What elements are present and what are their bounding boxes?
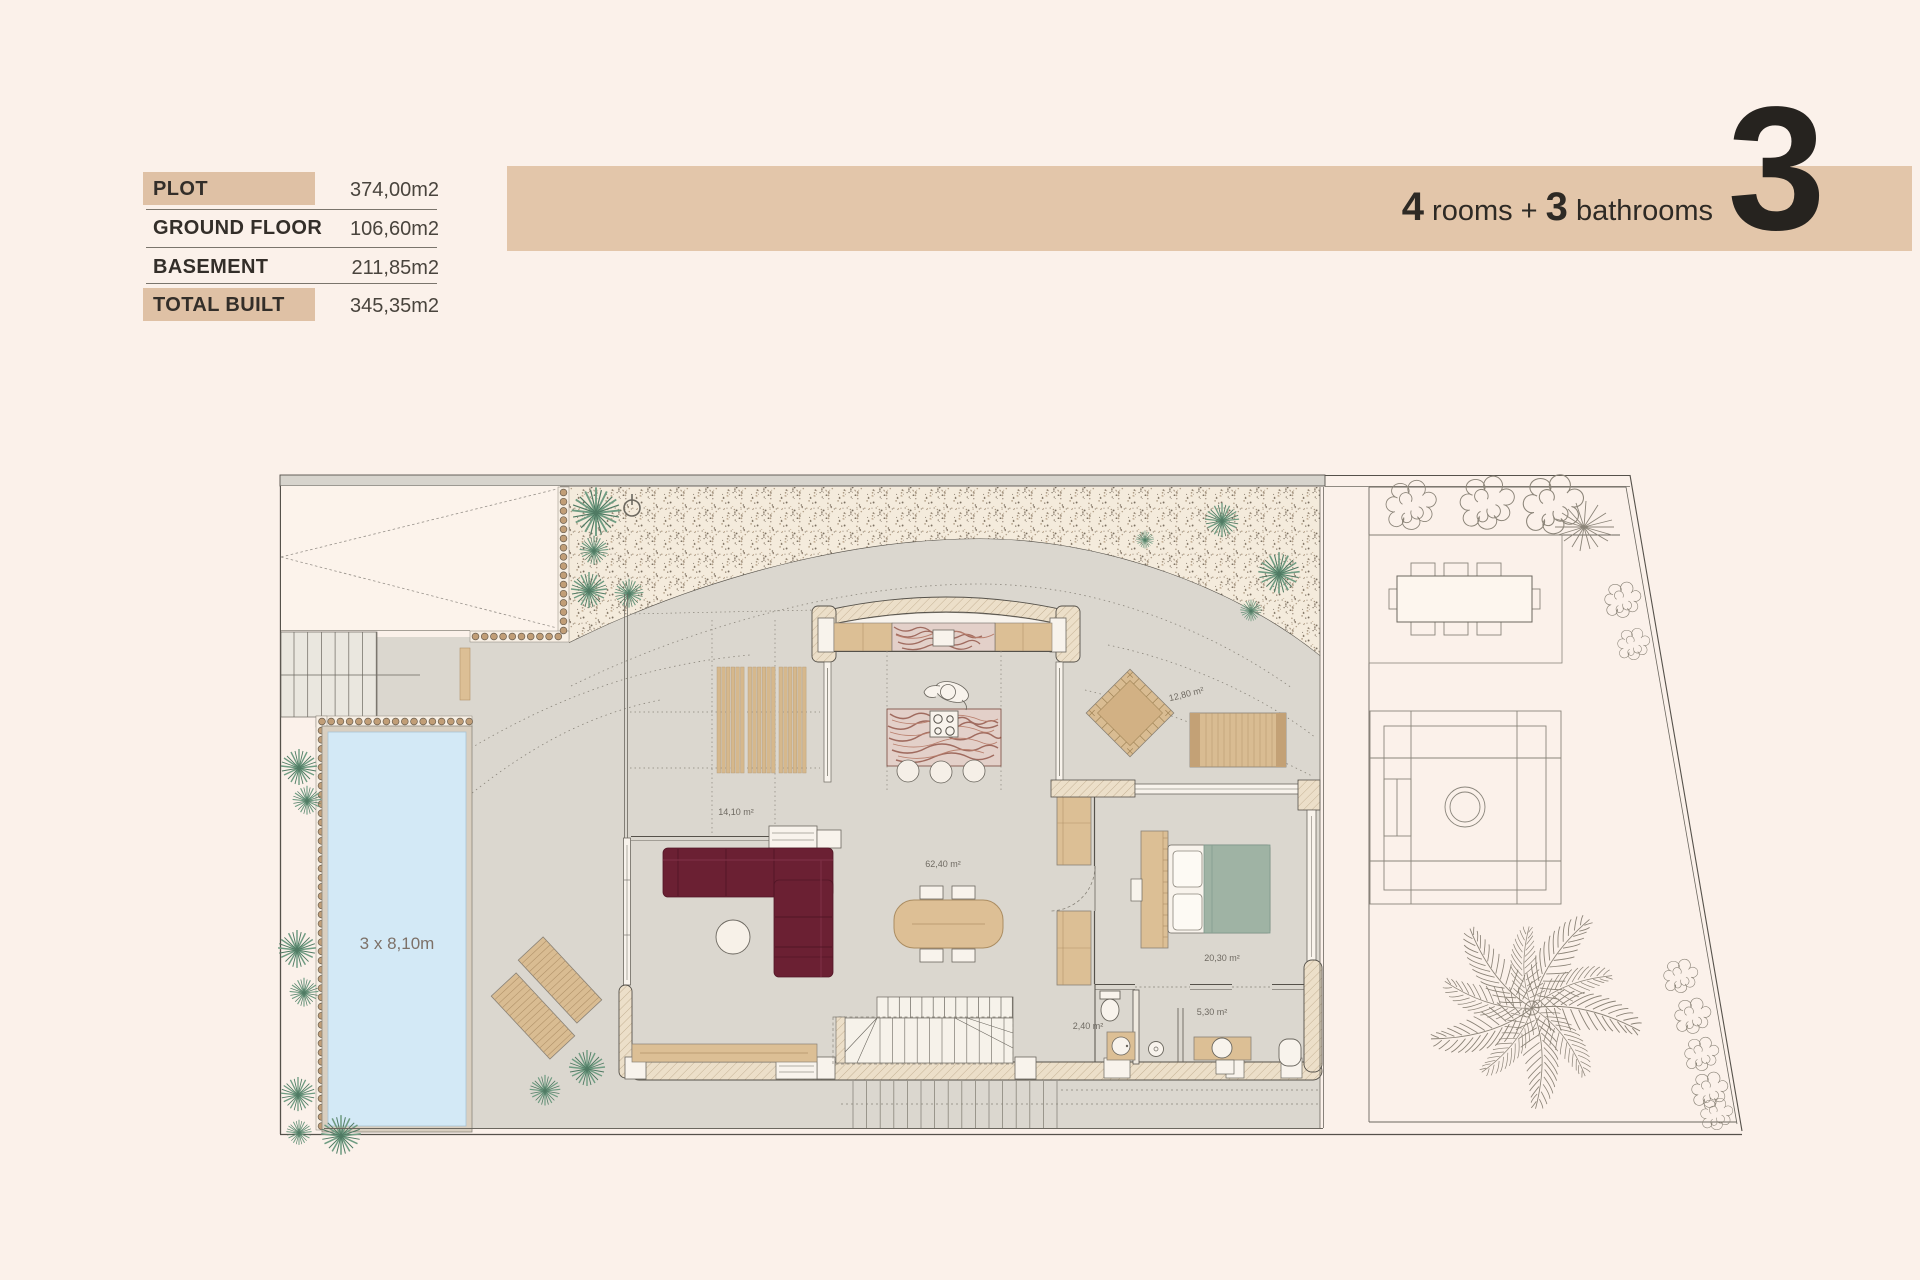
svg-text:3 x 8,10m: 3 x 8,10m <box>360 934 435 953</box>
svg-text:62,40 m²: 62,40 m² <box>925 859 961 869</box>
svg-text:2,40 m²: 2,40 m² <box>1073 1021 1104 1031</box>
svg-text:5,30 m²: 5,30 m² <box>1197 1007 1228 1017</box>
svg-text:20,30 m²: 20,30 m² <box>1204 953 1240 963</box>
svg-text:14,10 m²: 14,10 m² <box>718 807 754 817</box>
